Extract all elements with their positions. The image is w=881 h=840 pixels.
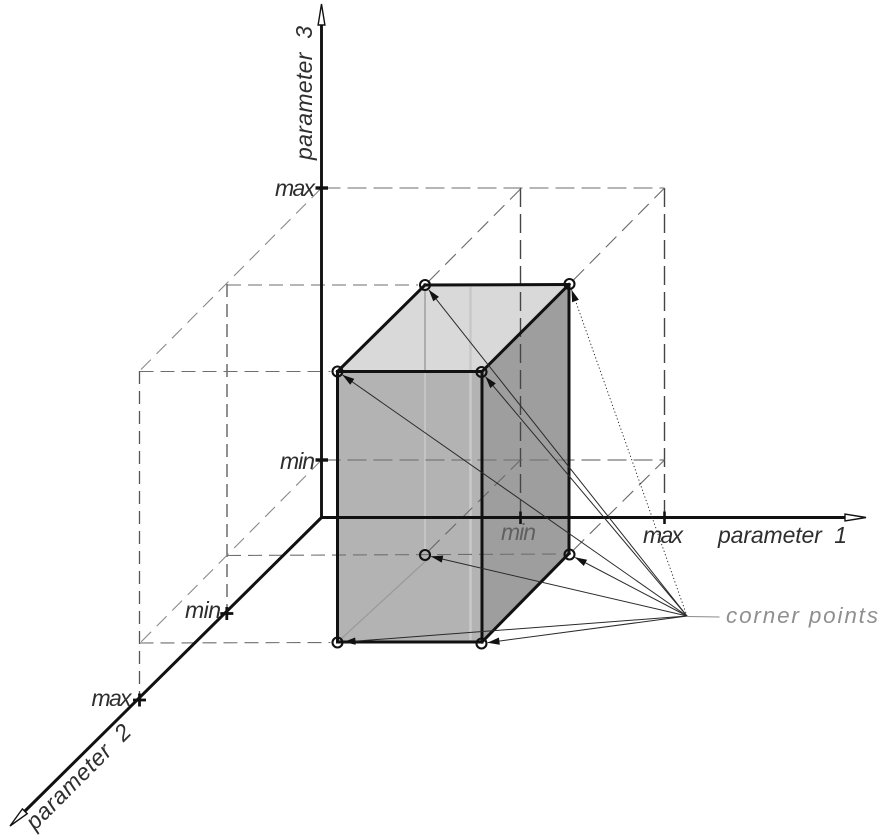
svg-text:parameter 1: parameter 1 <box>717 522 847 548</box>
svg-text:corner points: corner points <box>726 603 878 628</box>
svg-text:max: max <box>92 685 134 711</box>
svg-text:min: min <box>280 448 315 474</box>
svg-text:parameter 3: parameter 3 <box>291 26 317 161</box>
svg-text:max: max <box>275 175 317 201</box>
svg-text:min: min <box>185 597 221 623</box>
svg-text:max: max <box>643 522 685 548</box>
svg-text:min: min <box>501 519 536 545</box>
